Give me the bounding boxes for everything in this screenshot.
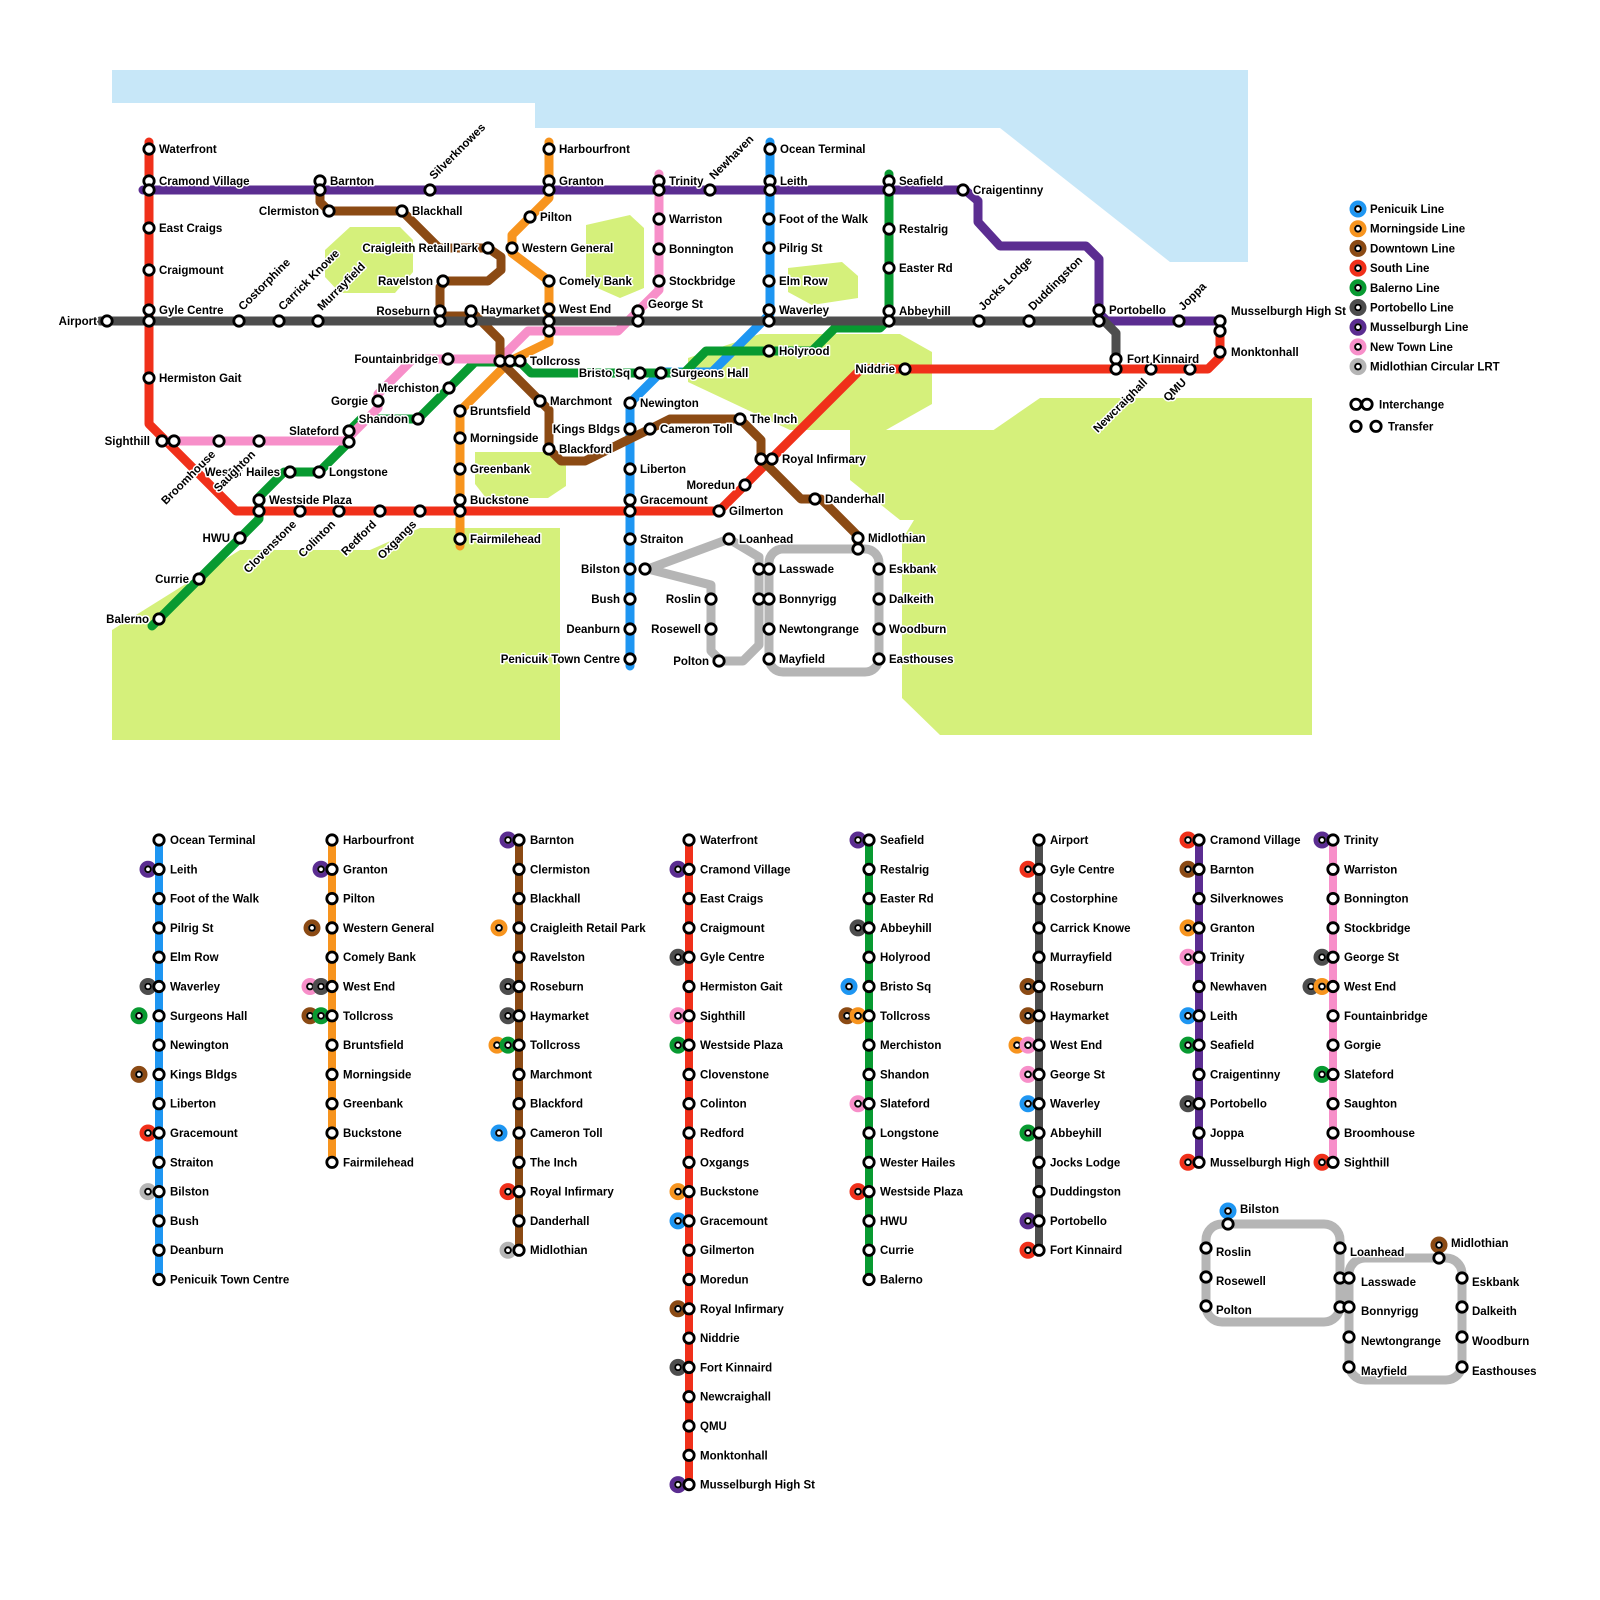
station-marker xyxy=(684,1157,694,1167)
diagram-station-fairmilehead: Fairmilehead xyxy=(327,1157,414,1169)
brown-connection-icon-inner xyxy=(136,1072,142,1078)
balerno-line-line-icon-inner xyxy=(1355,285,1361,291)
station-label: Sighthill xyxy=(700,1011,745,1023)
station-label: Roseburn xyxy=(530,982,584,994)
station-marker xyxy=(684,1479,694,1489)
station-marker xyxy=(154,1157,164,1167)
station-marker xyxy=(544,304,554,314)
station-marker xyxy=(625,424,635,434)
station-marker xyxy=(254,436,264,446)
map-station-bonnyrigg: Bonnyrigg xyxy=(754,594,837,606)
station-label: Cramond Village xyxy=(700,864,791,876)
station-label: Leith xyxy=(1210,1011,1237,1023)
station-marker xyxy=(625,624,635,634)
purple-connection-icon-inner xyxy=(1319,837,1325,843)
diagram-station-cramond-village: Cramond Village xyxy=(672,863,791,876)
diagram-station-royal-infirmary: Royal Infirmary xyxy=(502,1185,615,1198)
station-label: Longstone xyxy=(880,1128,939,1140)
station-marker xyxy=(1034,1245,1044,1255)
diagram-station-greenbank: Greenbank xyxy=(327,1099,404,1111)
station-marker xyxy=(444,383,454,393)
station-label: Craigentinny xyxy=(973,185,1044,197)
station-label: Longstone xyxy=(329,467,388,479)
diagram-station-restalrig: Restalrig xyxy=(864,864,929,876)
station-marker xyxy=(157,436,167,446)
station-label: Royal Infirmary xyxy=(782,454,866,466)
diagram-station-abbeyhill: Abbeyhill xyxy=(1022,1127,1102,1140)
station-label: Airport xyxy=(1050,835,1089,847)
station-marker xyxy=(1215,347,1225,357)
diagram-station-buckstone: Buckstone xyxy=(672,1185,759,1198)
station-marker xyxy=(625,398,635,408)
park-area xyxy=(112,528,560,740)
map-station-lasswade: Lasswade xyxy=(754,564,834,576)
map-station-tollcross: Tollcross xyxy=(495,356,580,368)
diagram-station-penicuik-town-centre: Penicuik Town Centre xyxy=(154,1274,289,1286)
station-label: Fairmilehead xyxy=(343,1157,414,1169)
station-label: Roslin xyxy=(666,594,701,606)
station-label: Bristo Sq xyxy=(579,368,630,380)
diagram-station-ravelston: Ravelston xyxy=(514,952,585,964)
station-marker xyxy=(1201,1243,1211,1253)
map-station-costorphine: Costorphine xyxy=(234,257,293,326)
station-marker xyxy=(1344,1302,1354,1312)
station-marker xyxy=(254,506,264,516)
station-label: Silverknowes xyxy=(428,122,488,182)
station-label: HWU xyxy=(880,1216,907,1228)
map-station-duddingston: Duddingston xyxy=(1024,254,1085,326)
diagram-station-roseburn: Roseburn xyxy=(1022,980,1104,993)
station-marker xyxy=(645,424,655,434)
station-marker xyxy=(958,185,968,195)
red-connection-icon-inner xyxy=(1185,1159,1191,1165)
station-label: Gyle Centre xyxy=(1050,864,1115,876)
station-marker xyxy=(1034,1157,1044,1167)
brown-connection-icon-inner xyxy=(1185,866,1191,872)
diagram-station-loanhead: Loanhead xyxy=(1335,1243,1405,1259)
station-marker xyxy=(154,1274,164,1284)
station-marker xyxy=(455,406,465,416)
station-label: Tollcross xyxy=(880,1011,930,1023)
station-marker xyxy=(154,1040,164,1050)
station-label: Seafield xyxy=(1210,1040,1254,1052)
diagram-station-longstone: Longstone xyxy=(864,1128,939,1140)
station-marker xyxy=(254,495,264,505)
station-label: Clovenstone xyxy=(700,1069,769,1081)
station-label: Greenbank xyxy=(343,1099,404,1111)
diagram-station-musselburgh-high-st: Musselburgh High St xyxy=(1182,1156,1325,1169)
station-marker xyxy=(514,1216,524,1226)
orange-connection-icon-inner xyxy=(855,1013,861,1019)
station-label: Surgeons Hall xyxy=(671,368,748,380)
diagram-station-haymarket: Haymarket xyxy=(1022,1010,1109,1023)
station-label: Gorgie xyxy=(331,396,368,408)
map-station-straiton: Straiton xyxy=(625,534,684,546)
station-label: Musselburgh High St xyxy=(700,1480,815,1492)
map-station-bonnington: Bonnington xyxy=(654,244,734,256)
diagram-station-western-general: Western General xyxy=(306,922,434,935)
station-label: West End xyxy=(1344,982,1396,994)
station-marker xyxy=(455,534,465,544)
map-station-penicuik-town-centre: Penicuik Town Centre xyxy=(501,654,635,666)
station-marker xyxy=(154,864,164,874)
map-station-pilrig-st: Pilrig St xyxy=(764,243,823,255)
pink-connection-icon-inner xyxy=(1025,1072,1031,1078)
station-marker xyxy=(285,467,295,477)
diagram-station-surgeons-hall: Surgeons Hall xyxy=(133,1010,248,1023)
diagram-station-roseburn: Roseburn xyxy=(502,980,584,993)
pink-connection-icon-inner xyxy=(1185,954,1191,960)
station-label: Fort Kinnaird xyxy=(700,1362,772,1374)
station-label: Colinton xyxy=(700,1099,747,1111)
station-marker xyxy=(864,893,874,903)
station-marker xyxy=(635,368,645,378)
station-marker xyxy=(507,243,517,253)
station-label: Trinity xyxy=(669,176,704,188)
diagram-station-west-end: West End xyxy=(304,980,395,993)
station-label: George St xyxy=(1050,1069,1105,1081)
station-label: Cramond Village xyxy=(159,176,250,188)
diagram-station-buckstone: Buckstone xyxy=(327,1128,402,1140)
diagram-station-westside-plaza: Westside Plaza xyxy=(852,1185,964,1198)
station-marker xyxy=(684,952,694,962)
metro-map-canvas: WaterfrontCramond VillageEast CraigsCrai… xyxy=(0,0,1600,1600)
station-label: Westside Plaza xyxy=(880,1187,963,1199)
station-label: Dalkeith xyxy=(889,594,934,606)
diagram-station-waverley: Waverley xyxy=(142,980,221,993)
station-label: Saughton xyxy=(1344,1099,1397,1111)
map-station-shandon: Shandon xyxy=(359,414,423,426)
purple-connection-icon-inner xyxy=(145,866,151,872)
station-marker xyxy=(1328,1069,1338,1079)
station-marker xyxy=(864,1216,874,1226)
diagram-station-harbourfront: Harbourfront xyxy=(327,835,414,847)
map-station-balerno: Balerno xyxy=(106,614,164,626)
station-label: Morningside xyxy=(470,433,538,445)
diagram-station-portobello: Portobello xyxy=(1182,1098,1267,1111)
station-label: Gracemount xyxy=(170,1128,238,1140)
diagram-station-cameron-toll: Cameron Toll xyxy=(493,1127,603,1140)
green-connection-icon-inner xyxy=(675,1042,681,1048)
map-station-gilmerton: Gilmerton xyxy=(714,506,784,518)
legend-item-musselburgh-line: Musselburgh Line xyxy=(1352,321,1469,334)
diagram-station-fountainbridge: Fountainbridge xyxy=(1328,1011,1428,1023)
station-label: Bush xyxy=(170,1216,199,1228)
diagram-station-george-st: George St xyxy=(1022,1068,1105,1081)
diagram-station-tollcross: Tollcross xyxy=(491,1039,580,1052)
station-marker xyxy=(974,316,984,326)
station-marker xyxy=(415,506,425,516)
station-label: Gorgie xyxy=(1344,1040,1381,1052)
station-label: Easthouses xyxy=(889,654,954,666)
station-label: Balerno xyxy=(880,1275,923,1287)
station-label: Costorphine xyxy=(1050,894,1118,906)
purple-connection-icon-inner xyxy=(318,866,324,872)
station-label: Barnton xyxy=(1210,864,1254,876)
station-marker xyxy=(544,444,554,454)
station-marker xyxy=(515,356,525,366)
station-marker xyxy=(154,1069,164,1079)
diagram-station-qmu: QMU xyxy=(684,1421,727,1433)
penicuik-line-diagram: Ocean TerminalLeithFoot of the WalkPilri… xyxy=(133,835,289,1287)
station-label: Tollcross xyxy=(530,356,580,368)
diagram-station-west-end: West End xyxy=(1011,1039,1102,1052)
legend-item-penicuik-line: Penicuik Line xyxy=(1352,203,1444,216)
station-marker xyxy=(656,368,666,378)
station-label: Pilrig St xyxy=(170,923,214,935)
station-marker xyxy=(864,835,874,845)
map-station-comely-bank: Comely Bank xyxy=(544,276,633,288)
diagram-station-kings-bldgs: Kings Bldgs xyxy=(133,1068,237,1081)
station-label: Clermiston xyxy=(530,864,590,876)
diagram-station-monktonhall: Monktonhall xyxy=(684,1450,768,1462)
diagram-station-midlothian: Midlothian xyxy=(1433,1238,1509,1263)
map-station-craigleith-retail-park: Craigleith Retail Park xyxy=(362,243,493,255)
south-line-diagram: WaterfrontCramond VillageEast CraigsCrai… xyxy=(672,835,815,1492)
station-label: Foot of the Walk xyxy=(170,894,260,906)
diagram-station-murrayfield: Murrayfield xyxy=(1034,952,1112,964)
red-connection-icon-inner xyxy=(1319,1159,1325,1165)
station-marker xyxy=(327,1069,337,1079)
pink-connection-icon-inner xyxy=(307,984,313,990)
station-label: Waverley xyxy=(1050,1099,1101,1111)
station-marker xyxy=(514,1186,524,1196)
diagram-station-barnton: Barnton xyxy=(502,834,574,847)
station-marker xyxy=(735,414,745,424)
green-connection-icon-inner xyxy=(318,1013,324,1019)
station-label: Elm Row xyxy=(779,276,828,288)
station-marker xyxy=(1328,893,1338,903)
station-label: Currie xyxy=(155,574,189,586)
diagram-station-airport: Airport xyxy=(1034,835,1089,847)
line-diagrams-layer: Ocean TerminalLeithFoot of the WalkPilri… xyxy=(133,834,1537,1492)
map-station-bush: Bush xyxy=(591,594,635,606)
diagram-station-easthouses: Easthouses xyxy=(1457,1362,1537,1378)
station-marker xyxy=(525,212,535,222)
station-marker xyxy=(864,1128,874,1138)
diagram-station-shandon: Shandon xyxy=(864,1069,929,1081)
station-label: Gyle Centre xyxy=(700,952,765,964)
station-marker xyxy=(764,564,774,574)
station-label: Niddrie xyxy=(855,364,895,376)
purple-connection-icon-inner xyxy=(675,1482,681,1488)
station-marker xyxy=(654,276,664,286)
station-label: Penicuik Town Centre xyxy=(170,1275,289,1287)
diagram-station-musselburgh-high-st: Musselburgh High St xyxy=(672,1478,815,1491)
station-marker xyxy=(684,1099,694,1109)
diagram-station-fort-kinnaird: Fort Kinnaird xyxy=(672,1361,772,1374)
station-label: Kings Bldgs xyxy=(553,424,620,436)
station-label: Niddrie xyxy=(700,1333,740,1345)
diagram-station-midlothian: Midlothian xyxy=(502,1244,588,1257)
station-marker xyxy=(214,436,224,446)
station-label: Polton xyxy=(1216,1305,1252,1317)
station-label: Buckstone xyxy=(700,1187,759,1199)
station-marker xyxy=(154,835,164,845)
station-marker xyxy=(514,1128,524,1138)
diagram-station-elm-row: Elm Row xyxy=(154,952,219,964)
station-marker xyxy=(706,594,716,604)
map-station-newtongrange: Newtongrange xyxy=(764,624,859,636)
station-marker xyxy=(625,564,635,574)
diagram-station-morningside: Morningside xyxy=(327,1069,412,1081)
station-label: Bruntsfield xyxy=(470,406,531,418)
station-label: East Craigs xyxy=(700,894,763,906)
blue-connection-icon-inner xyxy=(1225,1208,1231,1214)
station-label: George St xyxy=(1344,952,1399,964)
station-label: Blackford xyxy=(530,1099,583,1111)
station-marker xyxy=(764,305,774,315)
station-label: West End xyxy=(1050,1040,1102,1052)
gray-connection-icon-inner xyxy=(318,984,324,990)
diagram-station-rosewell: Rosewell xyxy=(1201,1272,1266,1288)
diagram-station-marchmont: Marchmont xyxy=(514,1069,592,1081)
diagram-station-the-inch: The Inch xyxy=(514,1157,577,1169)
station-marker xyxy=(154,1216,164,1226)
station-marker xyxy=(864,923,874,933)
station-label: Slateford xyxy=(880,1099,930,1111)
station-label: Abbeyhill xyxy=(899,306,951,318)
diagram-station-liberton: Liberton xyxy=(154,1099,216,1111)
station-marker xyxy=(327,1128,337,1138)
station-marker xyxy=(1344,1362,1354,1372)
station-marker xyxy=(764,316,774,326)
midlothian-lrt-left-loop xyxy=(648,539,759,661)
diagram-station-stockbridge: Stockbridge xyxy=(1328,923,1411,935)
station-label: Gracemount xyxy=(700,1216,768,1228)
station-marker xyxy=(625,594,635,604)
diagram-station-jocks-lodge: Jocks Lodge xyxy=(1034,1157,1121,1169)
purple-connection-icon-inner xyxy=(505,837,511,843)
diagram-station-broomhouse: Broomhouse xyxy=(1328,1128,1415,1140)
station-marker xyxy=(884,224,894,234)
map-station-mayfield: Mayfield xyxy=(764,654,825,666)
diagram-station-sighthill: Sighthill xyxy=(1316,1156,1390,1169)
map-station-greenbank: Greenbank xyxy=(455,464,531,476)
station-marker xyxy=(483,243,493,253)
red-connection-icon-inner xyxy=(505,1189,511,1195)
station-label: Fairmilehead xyxy=(470,534,541,546)
diagram-station-balerno: Balerno xyxy=(864,1274,923,1286)
station-marker xyxy=(1034,1216,1044,1226)
morningside-line-line-icon-inner xyxy=(1355,226,1361,232)
station-marker xyxy=(514,1011,524,1021)
station-label: Abbeyhill xyxy=(1050,1128,1102,1140)
station-marker xyxy=(1457,1273,1467,1283)
station-marker xyxy=(1328,923,1338,933)
station-marker xyxy=(864,1186,874,1196)
diagram-station-newington: Newington xyxy=(154,1040,229,1052)
diagram-station-moredun: Moredun xyxy=(684,1274,749,1286)
station-marker xyxy=(684,1040,694,1050)
diagram-station-comely-bank: Comely Bank xyxy=(327,952,417,964)
station-marker xyxy=(514,923,524,933)
station-marker xyxy=(514,1040,524,1050)
legend-item-new-town-line: New Town Line xyxy=(1352,341,1453,354)
map-station-easthouses: Easthouses xyxy=(874,654,954,666)
diagram-station-redford: Redford xyxy=(684,1128,744,1140)
station-label: Marchmont xyxy=(550,396,612,408)
station-marker xyxy=(1034,893,1044,903)
midlothian-circular-lrt-line-icon-inner xyxy=(1355,364,1361,370)
station-label: Trinity xyxy=(1344,835,1379,847)
balerno-line-diagram: SeafieldRestalrigEaster RdAbbeyhillHolyr… xyxy=(841,834,964,1287)
diagram-station-clovenstone: Clovenstone xyxy=(684,1069,769,1081)
diagram-station-haymarket: Haymarket xyxy=(502,1010,589,1023)
diagram-station-gracemount: Gracemount xyxy=(142,1127,238,1140)
interchange-icon xyxy=(1351,399,1361,409)
lrt-connection-icon-inner xyxy=(145,1189,151,1195)
station-marker xyxy=(154,1099,164,1109)
station-label: Ocean Terminal xyxy=(780,144,865,156)
portobello-line-line-icon-inner xyxy=(1355,305,1361,311)
station-label: Stockbridge xyxy=(669,276,735,288)
legend-item-label: Downtown Line xyxy=(1370,243,1455,255)
station-marker xyxy=(1094,316,1104,326)
map-station-harbourfront: Harbourfront xyxy=(544,144,630,156)
green-connection-icon-inner xyxy=(136,1013,142,1019)
station-marker xyxy=(144,223,154,233)
station-marker xyxy=(767,454,777,464)
station-label: Dalkeith xyxy=(1472,1306,1517,1318)
station-marker xyxy=(764,654,774,664)
station-label: Roslin xyxy=(1216,1247,1251,1259)
station-label: Straiton xyxy=(640,534,683,546)
station-marker xyxy=(764,243,774,253)
station-marker xyxy=(740,480,750,490)
red-connection-icon-inner xyxy=(1185,837,1191,843)
morningside-line-diagram: HarbourfrontGrantonPiltonWestern General… xyxy=(304,835,434,1170)
brown-connection-icon-inner xyxy=(1025,1013,1031,1019)
station-label: Gracemount xyxy=(640,495,708,507)
station-marker xyxy=(1344,1273,1354,1283)
station-label: Newhaven xyxy=(1210,982,1267,994)
station-marker xyxy=(864,952,874,962)
station-label: Lasswade xyxy=(779,564,834,576)
station-label: Duddingston xyxy=(1050,1187,1121,1199)
station-label: Western General xyxy=(343,923,434,935)
station-label: Broomhouse xyxy=(1344,1128,1415,1140)
station-label: Danderhall xyxy=(825,494,884,506)
diagram-station-bristo-sq: Bristo Sq xyxy=(843,980,931,993)
diagram-station-gyle-centre: Gyle Centre xyxy=(1022,863,1115,876)
station-label: Redford xyxy=(700,1128,744,1140)
station-marker xyxy=(315,185,325,195)
station-label: Haymarket xyxy=(530,1011,589,1023)
diagram-station-fort-kinnaird: Fort Kinnaird xyxy=(1022,1244,1122,1257)
station-marker xyxy=(874,594,884,604)
legend-item-label: Balerno Line xyxy=(1370,283,1440,295)
station-marker xyxy=(295,506,305,516)
station-label: East Craigs xyxy=(159,223,222,235)
station-label: Sighthill xyxy=(105,436,150,448)
diagram-station-portobello: Portobello xyxy=(1022,1215,1107,1228)
map-station-niddrie: Niddrie xyxy=(855,364,910,376)
station-label: Waterfront xyxy=(159,144,217,156)
station-marker xyxy=(864,981,874,991)
station-marker xyxy=(853,544,863,554)
diagram-station-craigentinny: Craigentinny xyxy=(1194,1069,1281,1081)
station-marker xyxy=(154,981,164,991)
station-label: West End xyxy=(559,304,611,316)
station-label: Ocean Terminal xyxy=(170,835,255,847)
station-marker xyxy=(654,214,664,224)
diagram-station-craigmount: Craigmount xyxy=(684,923,765,935)
station-marker xyxy=(154,923,164,933)
station-marker xyxy=(1328,1099,1338,1109)
diagram-station-gracemount: Gracemount xyxy=(672,1215,768,1228)
station-marker xyxy=(1194,1040,1204,1050)
